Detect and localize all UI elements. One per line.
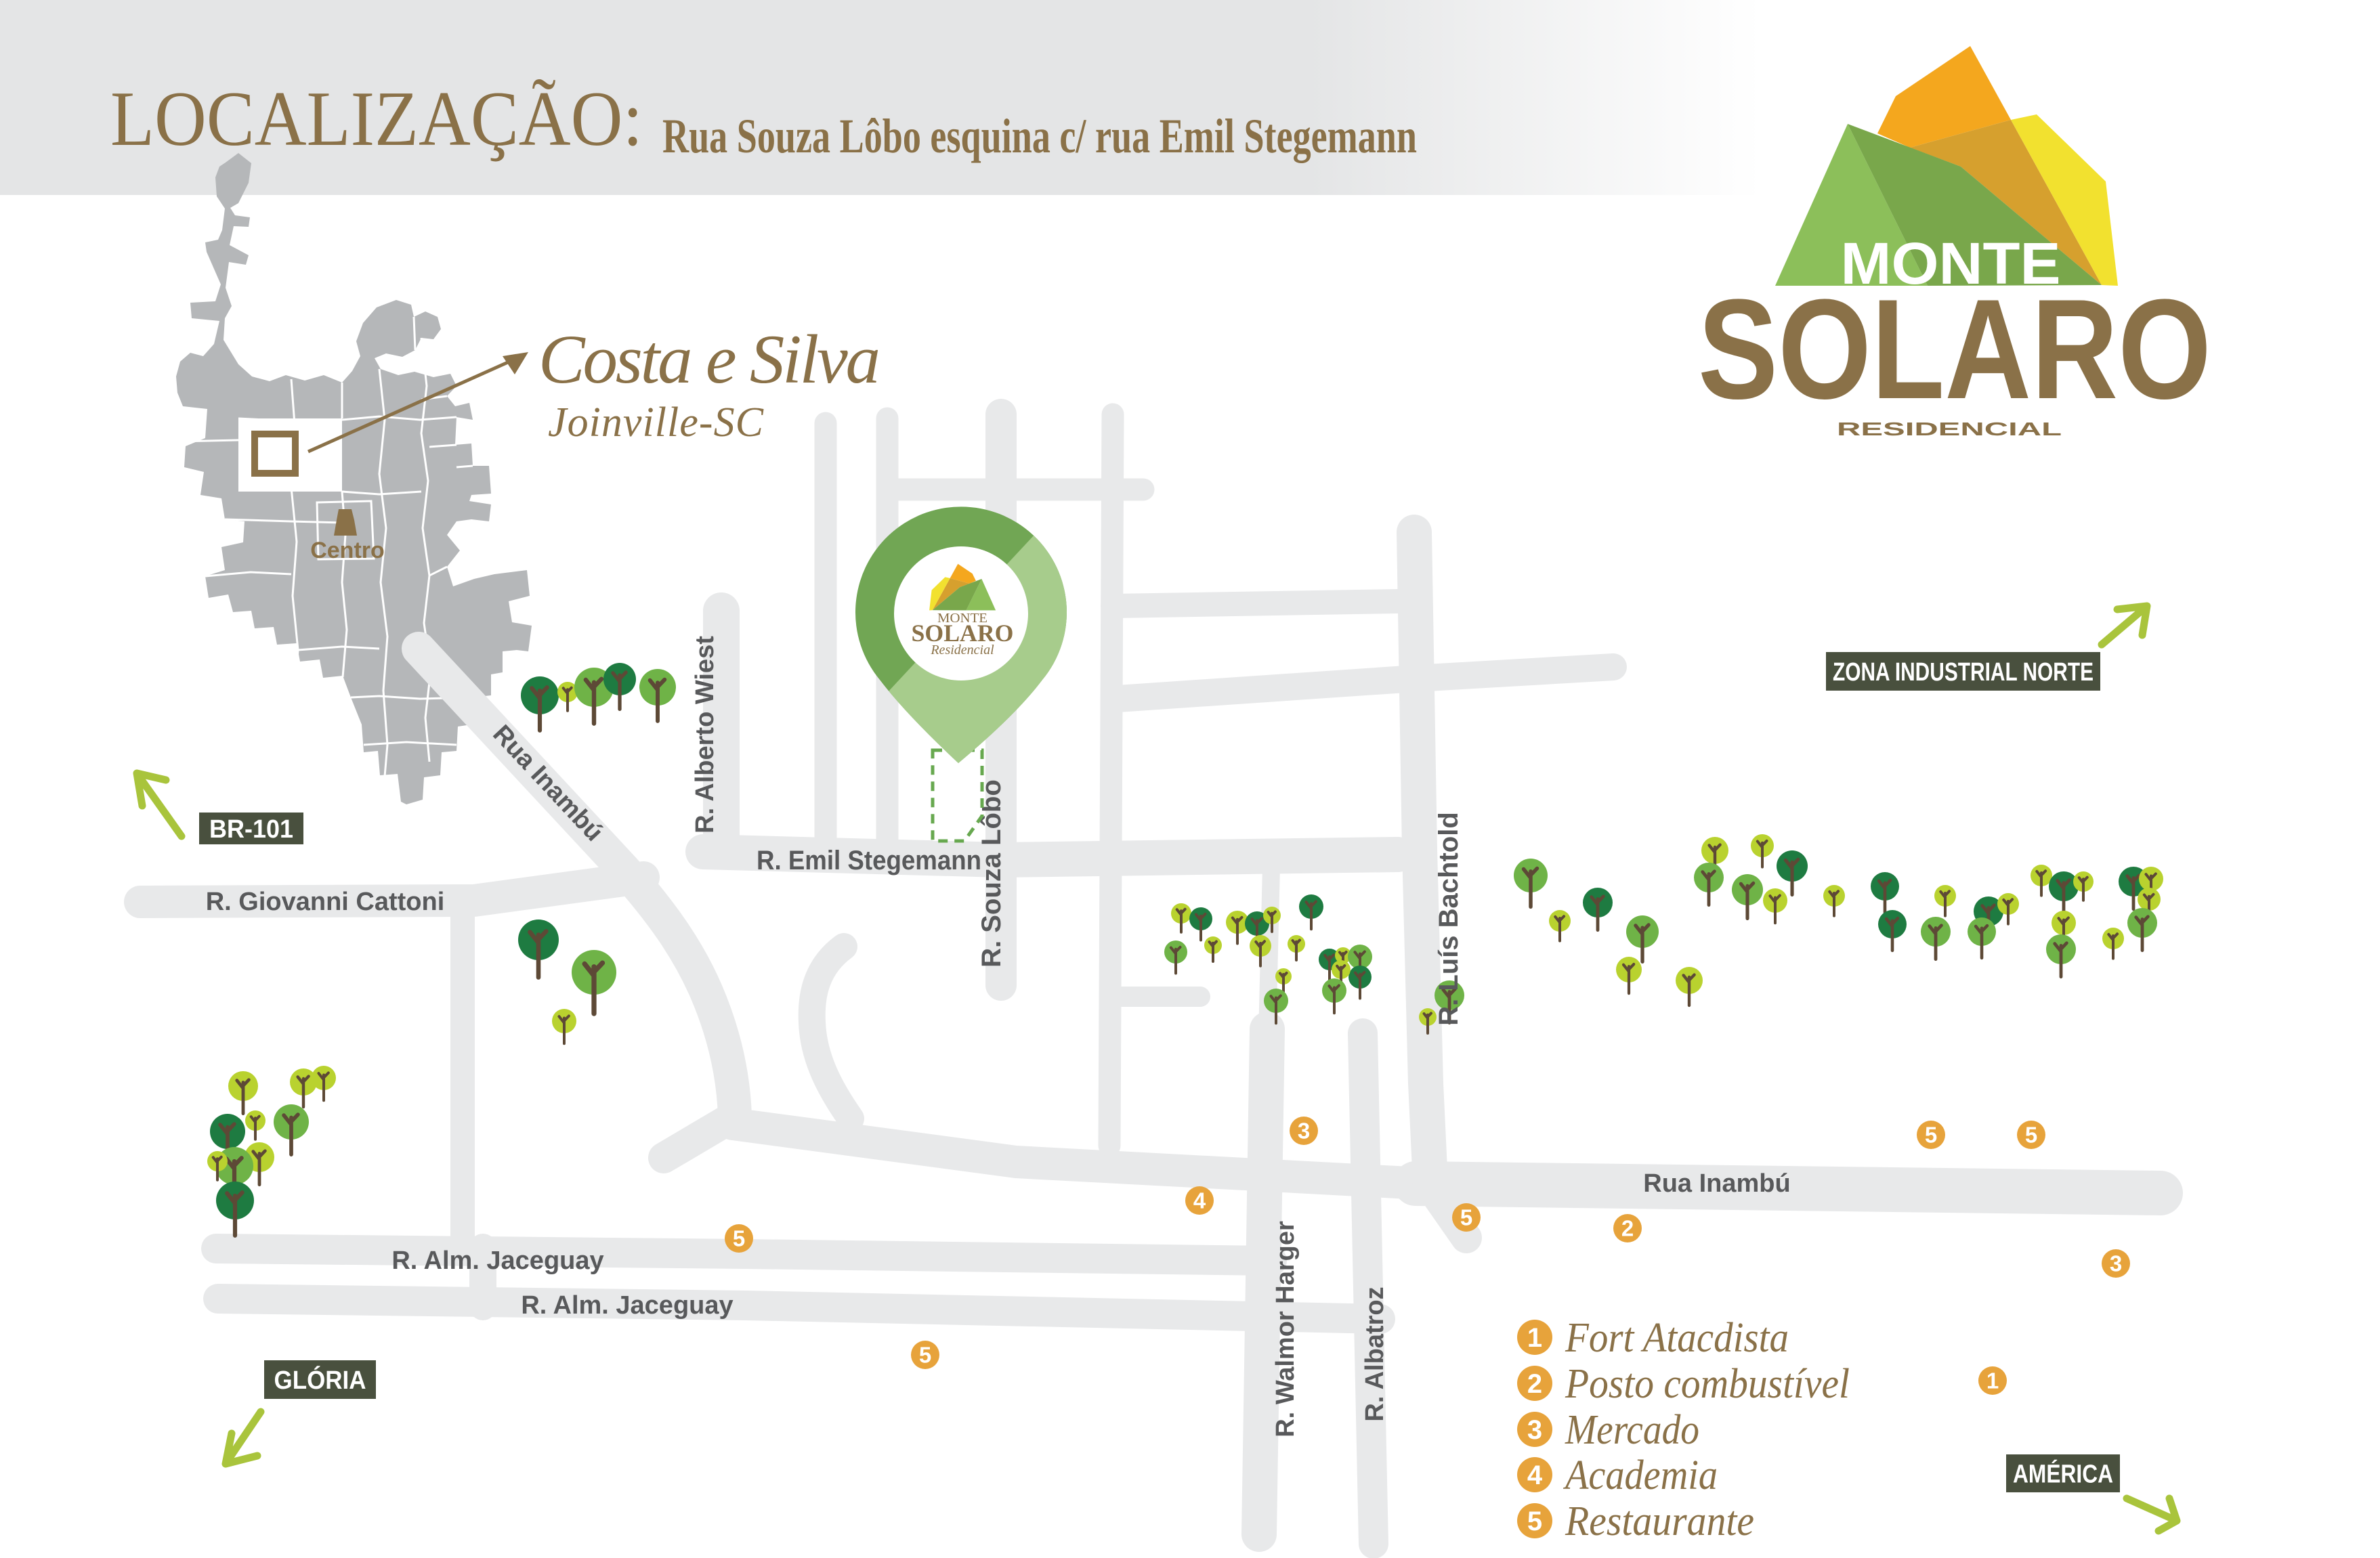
svg-text:2: 2 [1527,1369,1542,1399]
svg-text:2: 2 [1621,1216,1634,1241]
svg-text:Restaurante: Restaurante [1565,1498,1754,1544]
svg-text:LOCALIZAÇÃO:: LOCALIZAÇÃO: [110,76,643,163]
svg-text:AMÉRICA: AMÉRICA [2013,1458,2113,1488]
svg-text:R. Alm. Jaceguay: R. Alm. Jaceguay [521,1291,733,1320]
svg-text:Mercado: Mercado [1565,1407,1699,1453]
svg-text:RESIDENCIAL: RESIDENCIAL [1837,418,2062,439]
svg-text:5: 5 [1460,1205,1472,1230]
svg-text:Posto combustível: Posto combustível [1565,1361,1850,1407]
svg-text:5: 5 [1527,1507,1542,1536]
svg-text:1: 1 [1986,1368,1999,1393]
svg-text:Joinville-SC: Joinville-SC [548,399,764,446]
svg-text:R. Emil Stegemann: R. Emil Stegemann [757,846,981,875]
svg-text:Costa e Silva: Costa e Silva [538,321,880,398]
svg-text:BR-101: BR-101 [209,815,293,844]
svg-text:Residencial: Residencial [930,643,994,657]
svg-text:R. Albatroz: R. Albatroz [1361,1286,1389,1421]
svg-text:GLÓRIA: GLÓRIA [274,1365,366,1395]
svg-text:5: 5 [1925,1123,1937,1148]
svg-text:ZONA INDUSTRIAL NORTE: ZONA INDUSTRIAL NORTE [1833,658,2094,687]
svg-text:Fort Atacdista: Fort Atacdista [1565,1315,1789,1361]
svg-text:4: 4 [1527,1460,1543,1490]
svg-text:R. Alberto Wiest: R. Alberto Wiest [691,636,719,834]
svg-text:5: 5 [919,1343,931,1368]
svg-text:SOLARO: SOLARO [1698,269,2211,429]
svg-text:3: 3 [1527,1415,1542,1445]
svg-text:3: 3 [1298,1119,1310,1144]
svg-text:1: 1 [1527,1323,1542,1353]
svg-text:Centro: Centro [310,538,385,563]
svg-text:R. Luís Bachtold: R. Luís Bachtold [1434,812,1464,1026]
svg-text:4: 4 [1193,1188,1206,1213]
svg-text:R. Walmor Harger: R. Walmor Harger [1271,1221,1300,1437]
svg-text:Academia: Academia [1563,1452,1718,1498]
svg-text:Rua Inambú: Rua Inambú [1643,1169,1790,1198]
svg-text:5: 5 [733,1226,745,1251]
svg-text:R. Giovanni Cattoni: R. Giovanni Cattoni [206,888,445,916]
svg-text:R. Alm. Jaceguay: R. Alm. Jaceguay [391,1247,603,1275]
svg-text:3: 3 [2110,1251,2122,1276]
svg-text:5: 5 [2025,1123,2037,1148]
svg-text:Rua Souza Lôbo esquina c/ rua: Rua Souza Lôbo esquina c/ rua Emil Stege… [662,109,1417,163]
